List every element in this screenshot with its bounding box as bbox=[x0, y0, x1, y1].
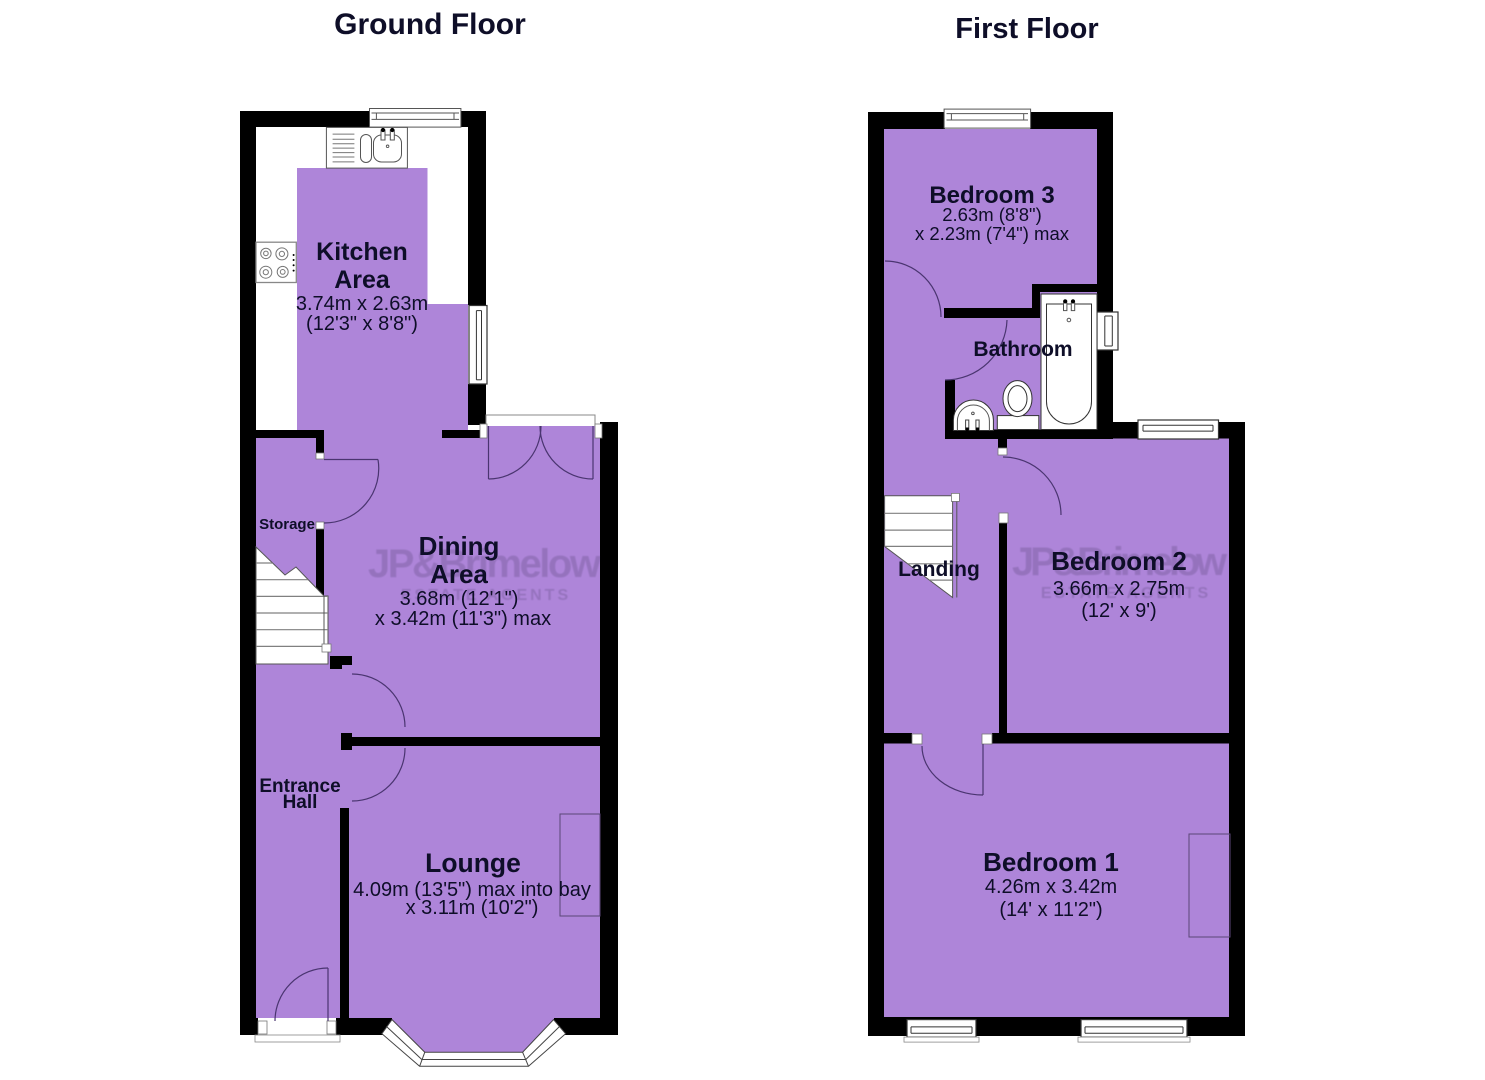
svg-text:Bedroom 1: Bedroom 1 bbox=[983, 847, 1119, 877]
svg-text:3.68m (12'1"): 3.68m (12'1") bbox=[400, 588, 519, 610]
svg-text:x 3.42m (11'3") max: x 3.42m (11'3") max bbox=[375, 608, 551, 630]
svg-text:3.66m x 2.75m: 3.66m x 2.75m bbox=[1053, 578, 1185, 600]
svg-text:Lounge: Lounge bbox=[425, 848, 521, 878]
svg-text:Area: Area bbox=[334, 266, 391, 294]
svg-text:Bedroom 2: Bedroom 2 bbox=[1051, 546, 1187, 576]
svg-text:(12'3" x 8'8"): (12'3" x 8'8") bbox=[306, 313, 418, 335]
svg-text:Bathroom: Bathroom bbox=[973, 338, 1072, 361]
svg-text:Landing: Landing bbox=[898, 558, 980, 581]
svg-text:(14' x 11'2"): (14' x 11'2") bbox=[999, 899, 1102, 921]
svg-text:Storage: Storage bbox=[259, 516, 315, 533]
svg-text:3.74m x 2.63m: 3.74m x 2.63m bbox=[296, 293, 428, 315]
svg-text:Ground Floor: Ground Floor bbox=[334, 8, 526, 41]
svg-text:x 3.11m (10'2"): x 3.11m (10'2") bbox=[406, 897, 539, 919]
svg-text:x 2.23m (7'4") max: x 2.23m (7'4") max bbox=[915, 223, 1070, 244]
svg-text:4.26m x 3.42m: 4.26m x 3.42m bbox=[985, 876, 1117, 898]
svg-text:Area: Area bbox=[430, 559, 488, 589]
svg-text:Kitchen: Kitchen bbox=[316, 238, 408, 266]
svg-text:Dining: Dining bbox=[419, 531, 500, 561]
svg-text:(12' x 9'): (12' x 9') bbox=[1081, 600, 1156, 622]
svg-text:2.63m (8'8"): 2.63m (8'8") bbox=[942, 204, 1042, 225]
svg-text:Hall: Hall bbox=[283, 792, 318, 813]
svg-text:First Floor: First Floor bbox=[955, 13, 1098, 45]
